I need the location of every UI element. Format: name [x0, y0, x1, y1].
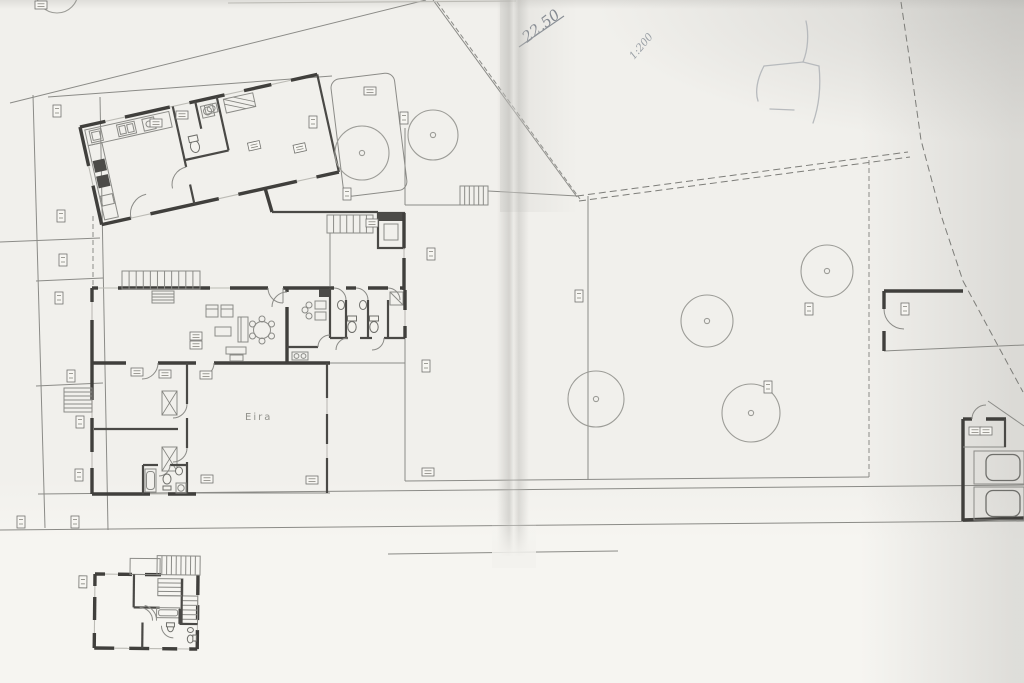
main-house-r: [221, 305, 233, 317]
annex-wing-l: [190, 185, 194, 205]
annex-wing-r: [119, 125, 127, 134]
tree-trunk: [748, 410, 753, 415]
main-house-l: [390, 292, 403, 305]
tree: [681, 295, 733, 347]
yard-lines-l: [884, 345, 1024, 351]
text-dim: 22.50: [518, 5, 564, 47]
marker-box: [131, 368, 143, 376]
marker-box: [306, 476, 318, 484]
yard-lines-l: [405, 477, 869, 481]
roads-l: [33, 95, 45, 528]
main-house-c: [269, 321, 275, 327]
annex-wing-l: [195, 101, 201, 128]
annex-wing-l: [185, 150, 229, 160]
marker-box: [980, 427, 992, 435]
main-house-e: [360, 301, 367, 310]
basement-plan-r: [157, 608, 180, 618]
pencil-sketch-p: [770, 109, 794, 110]
pencil-sketch-p: [813, 66, 820, 123]
annex-wing-l: [150, 199, 218, 214]
car: [986, 455, 1020, 481]
main-house-p: [268, 288, 283, 303]
basement-plan-p: [140, 607, 153, 620]
text-scale: 1:200: [627, 31, 656, 62]
main-house-l: [265, 188, 272, 212]
main-house-p: [334, 288, 346, 300]
tree: [335, 126, 389, 180]
main-house-e: [370, 322, 378, 333]
marker-box: [422, 360, 430, 372]
annex-wing-r: [93, 158, 107, 172]
annex-wing-window: [131, 214, 151, 218]
main-house-c: [302, 307, 308, 313]
site-boundaries-l: [577, 152, 908, 196]
yard-lines-l: [488, 191, 577, 196]
annex-wing-r: [89, 129, 103, 143]
annex-wing-window: [89, 166, 93, 186]
marker-box: [71, 516, 79, 528]
text-eira: Eira: [245, 412, 272, 423]
room-labels: Eira: [245, 412, 272, 423]
marker-box: [57, 210, 65, 222]
outbuilding: [884, 291, 963, 351]
marker-box: [150, 119, 162, 127]
pencil-sketch: [757, 21, 820, 123]
main-house-p: [272, 292, 287, 307]
scanned-site-plan: 22.501:200Eira: [0, 0, 1024, 683]
basement-plan-r: [166, 623, 174, 627]
roads-l: [0, 521, 1024, 530]
bedroom-wing-r: [147, 472, 155, 490]
marker-box: [309, 116, 317, 128]
annex-wing-r: [91, 131, 101, 141]
main-house-p: [372, 338, 384, 350]
marker-box: [343, 188, 351, 200]
stair-frame: [157, 556, 200, 575]
garage-p: [972, 405, 986, 419]
bedroom-wing-c: [178, 485, 184, 491]
roads: [0, 95, 1024, 554]
site-boundaries-l: [228, 1, 516, 3]
annex-wing-l: [125, 107, 170, 117]
marker-box: [17, 516, 25, 528]
roads-l: [0, 238, 100, 242]
main-house-r: [348, 316, 357, 321]
marker-box: [159, 370, 171, 378]
annex-wing-window: [219, 194, 239, 198]
main-house-c: [269, 333, 275, 339]
main-house-r: [378, 213, 404, 221]
marker-box: [901, 303, 909, 315]
marker-box: [366, 219, 378, 227]
tree: [408, 110, 458, 160]
marker-box: [200, 371, 212, 379]
annex-wing-r: [100, 194, 114, 206]
site-plan-drawing: 22.501:200Eira: [0, 0, 1024, 683]
marker-box: [79, 576, 87, 588]
main-house-r: [315, 312, 326, 320]
annex-wing: [80, 74, 339, 224]
tree: [801, 245, 853, 297]
basement-plan-e: [187, 627, 193, 632]
main-house-r: [319, 289, 329, 297]
site-boundaries-l: [437, 2, 580, 199]
annex-wing-window: [105, 117, 125, 121]
main-house-c: [294, 354, 299, 359]
marker-box: [575, 290, 583, 302]
main-house-r: [226, 347, 246, 354]
site-boundaries-l: [963, 281, 1023, 392]
main-house-r: [215, 327, 231, 336]
main-house-e: [338, 301, 345, 310]
bedroom-wing-e: [163, 474, 171, 484]
marker-box: [805, 303, 813, 315]
main-house-r: [370, 316, 379, 321]
marker-box: [53, 105, 61, 117]
tree-trunk: [430, 132, 435, 137]
marker-box: [59, 254, 67, 266]
roads-l: [388, 551, 618, 554]
marker-box: [969, 427, 981, 435]
annex-wing-l: [244, 85, 271, 91]
main-house-p: [318, 335, 330, 347]
annex-wing-l: [93, 186, 102, 225]
marker-box: [400, 112, 408, 124]
main-house-p: [356, 288, 368, 300]
basement-plan-r: [193, 635, 197, 641]
garage: [963, 405, 1024, 521]
site-boundaries-l: [579, 157, 910, 201]
marker-box: [55, 292, 63, 304]
main-house-r: [384, 224, 398, 240]
tree: [568, 371, 624, 427]
site-boundaries-l: [433, 0, 577, 197]
pencil-sketch-p: [764, 62, 819, 66]
bedroom-wing-p: [173, 404, 187, 418]
main-house-c: [301, 354, 306, 359]
main-house-c: [306, 313, 312, 319]
marker-box: [201, 475, 213, 483]
marker-box: [427, 248, 435, 260]
marker-box: [764, 381, 772, 393]
main-house-r: [230, 355, 243, 361]
marker-box: [422, 468, 434, 476]
yard-lines: [405, 128, 1024, 481]
main-house-r: [238, 317, 248, 342]
site-boundaries-l: [48, 76, 332, 97]
marker-box: [293, 143, 306, 153]
tree-trunk: [359, 150, 364, 155]
marker-box: [67, 370, 75, 382]
tree-trunk: [704, 318, 709, 323]
annex-wing-window: [271, 80, 291, 84]
main-house-r: [315, 301, 326, 309]
bedroom-wing-r: [163, 486, 171, 490]
annex-wing-window: [297, 177, 317, 181]
main-house-c: [254, 322, 271, 339]
annex-wing-r: [127, 124, 135, 133]
annex-wing-p: [169, 167, 190, 188]
annex-wing-window: [224, 91, 244, 95]
main-house-e: [348, 322, 356, 333]
annex-wing-r: [188, 135, 198, 143]
annex-wing-l: [316, 172, 338, 177]
tree-trunk: [824, 268, 829, 273]
marker-box: [190, 332, 202, 340]
basement-plan: [78, 555, 200, 649]
basement-plan-r: [130, 558, 160, 574]
bedroom-wing-e: [176, 467, 183, 475]
marker-box: [190, 341, 202, 349]
main-house-r: [206, 305, 218, 317]
marker-box: [364, 87, 376, 95]
annex-wing-l: [80, 127, 89, 166]
main-house-c: [250, 333, 256, 339]
tree-trunk: [593, 396, 598, 401]
annex-wing-r: [96, 174, 110, 188]
pencil-sketch-p: [803, 21, 808, 62]
handwriting: 22.501:200: [518, 5, 656, 62]
marker-box: [35, 1, 47, 9]
main-house-p: [336, 338, 348, 350]
pencil-sketch-p: [757, 66, 764, 101]
main-house-c: [250, 321, 256, 327]
site-boundaries-p: [901, 2, 963, 281]
main-house-p: [142, 363, 158, 379]
basement-plan-r: [159, 610, 178, 616]
marker-box: [176, 111, 188, 119]
bedroom-wing: [92, 363, 330, 494]
car: [986, 491, 1020, 517]
marker-box: [247, 141, 260, 151]
marker-box: [76, 416, 84, 428]
marker-box: [75, 469, 83, 481]
